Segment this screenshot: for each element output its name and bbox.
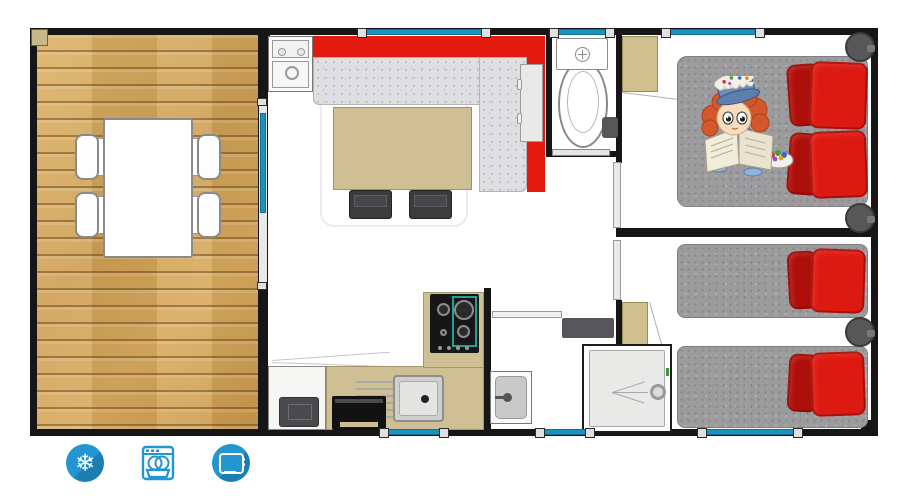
burner [440,329,447,336]
bedside-stool [845,203,875,233]
shower-fitting [666,368,669,376]
stool-handle [867,45,875,52]
bedrooms-divider-wall [616,228,878,237]
outdoor-chair [197,134,221,180]
sofa-side-table [520,64,543,142]
stool-handle [867,216,875,223]
outdoor-chair [75,134,99,180]
wc-door [552,149,610,156]
oven-panel [335,399,383,403]
burner [437,303,450,316]
snowflake-icon: ❄ [66,444,104,482]
pillow [810,351,866,417]
floor-plan: ❄ [0,0,900,500]
sofa-backrest-top [313,36,545,57]
kitchenette-cabinet [268,36,313,92]
gas-hob [430,294,479,353]
wc-wall [546,28,552,157]
sink-basin [399,381,438,416]
fridge-door-panel [288,404,312,420]
wc-tap [575,47,590,62]
spray-line [612,392,645,403]
sink-drain [421,395,429,403]
toilet-bowl [567,71,599,133]
shower-tray [589,350,665,427]
fridge [268,366,326,430]
stool-handle [867,330,875,337]
toilet [558,60,608,148]
microwave [272,61,309,88]
tv-button [243,463,246,466]
bedside-stool [845,32,875,62]
freezer-badge: ❄ [66,444,104,482]
cabinet-knob [297,48,305,56]
cabinet-top [272,40,309,58]
amenities-row: ❄ [66,444,250,482]
hob-knob [465,346,469,350]
dishwasher-icon [139,444,177,482]
wc-shelf [602,117,618,138]
window [668,29,758,35]
patio-door-window [260,113,266,213]
kitchen-sink [393,375,444,422]
deck-corner-pad [31,29,48,46]
child-reading-illustration [685,76,801,184]
window [364,29,484,35]
door-bracket [257,98,267,106]
hob-knob [456,346,460,350]
chair-back [414,195,447,207]
dining-table [333,107,472,190]
bathroom-shelf [562,318,614,338]
tv-base [224,471,236,473]
tv-button [243,458,246,461]
cabinet-knob [278,48,286,56]
dishwasher-badge [139,444,177,482]
outdoor-chair [197,192,221,238]
tv-badge [212,444,250,482]
washbasin [490,371,532,424]
dining-chair [409,190,452,219]
pillow [809,61,868,130]
burner [457,325,470,338]
bedroom2-cabinet [622,302,648,346]
oven [332,396,386,430]
window [704,429,796,435]
bedside-stool [845,317,875,347]
oven-handle [340,422,378,427]
bathroom-sliding-door [492,311,562,318]
hob-knob [447,346,451,350]
window [386,429,442,435]
hinge [517,113,522,124]
window [542,429,588,435]
window [556,29,608,35]
shower-drain [650,384,666,400]
door-bracket [257,282,267,290]
wc-sink [556,38,608,70]
dining-chair [349,190,392,219]
outdoor-dining-table [103,118,193,258]
pillow [809,130,868,199]
tap-head [503,393,512,402]
hinge [517,79,522,90]
pillow [810,248,866,314]
burner [454,300,474,320]
bedroom1-door [613,162,621,228]
bedroom2-door [613,240,621,300]
hall-wardrobe [622,36,658,92]
shower-room [582,344,672,433]
fridge-door [279,397,319,427]
chair-back [354,195,387,207]
hob-knob [438,346,442,350]
outdoor-chair [75,192,99,238]
microwave-dial [285,66,299,80]
